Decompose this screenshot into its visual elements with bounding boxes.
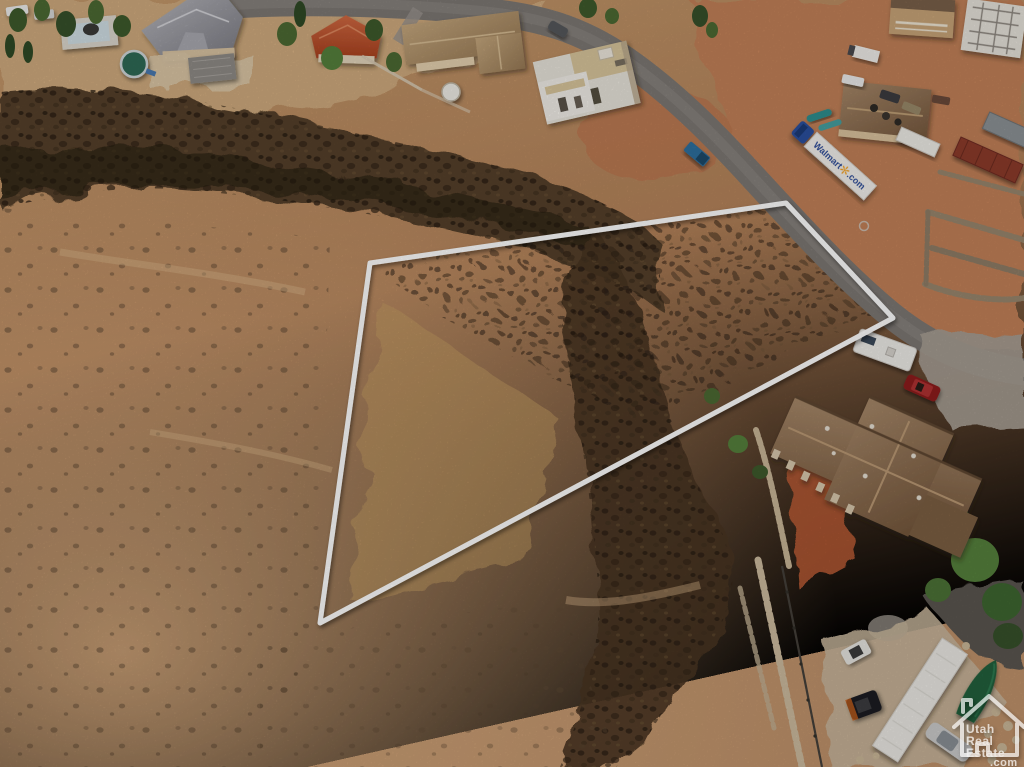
aerial-photo: Walmart .com xyxy=(0,0,1024,767)
photo-grain xyxy=(0,0,1024,767)
aerial-photo-stage: Walmart .com xyxy=(0,0,1024,767)
watermark-line4: .com xyxy=(990,757,1018,767)
